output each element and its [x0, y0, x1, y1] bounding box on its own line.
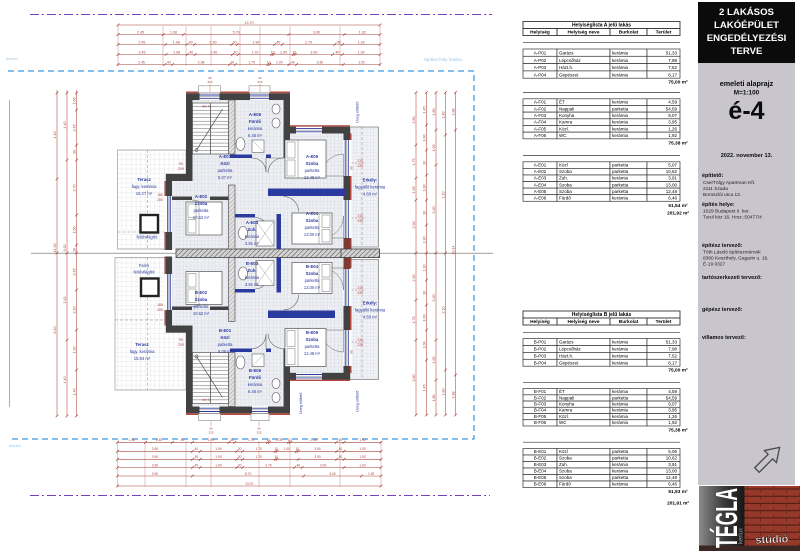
svg-text:kerámia: kerámia — [612, 65, 629, 70]
svg-text:40: 40 — [195, 463, 199, 467]
svg-text:Helyiséglista B jelű lakás: Helyiséglista B jelű lakás — [572, 312, 632, 318]
svg-text:Fürdő: Fürdő — [559, 482, 571, 487]
svg-text:1.92: 1.92 — [368, 472, 375, 476]
svg-text:3.20: 3.20 — [432, 207, 436, 214]
svg-text:B-E04: B-E04 — [306, 264, 319, 269]
svg-text:építés helye:: építés helye: — [702, 202, 735, 208]
svg-text:3.00: 3.00 — [313, 30, 320, 34]
svg-text:Terület: Terület — [656, 30, 672, 36]
svg-text:2.10: 2.10 — [442, 307, 446, 314]
svg-text:B-E06: B-E06 — [249, 368, 262, 373]
svg-text:225: 225 — [358, 219, 364, 223]
svg-text:A-E05: A-E05 — [534, 189, 547, 194]
svg-text:1.92: 1.92 — [359, 455, 366, 459]
svg-text:2.45: 2.45 — [137, 30, 144, 34]
svg-text:Garázs: Garázs — [559, 51, 574, 56]
svg-text:30: 30 — [230, 438, 234, 442]
svg-text:30: 30 — [238, 447, 242, 451]
svg-text:felülvilágító: felülvilágító — [137, 235, 159, 240]
svg-text:2.80: 2.80 — [412, 117, 416, 124]
svg-text:B-E04: B-E04 — [534, 469, 547, 474]
svg-text:3.90: 3.90 — [152, 447, 159, 451]
svg-text:kerámia: kerámia — [612, 340, 629, 345]
svg-text:parketta: parketta — [194, 304, 210, 309]
svg-text:LAKÓÉPÜLET: LAKÓÉPÜLET — [714, 19, 779, 31]
svg-text:1.00: 1.00 — [423, 342, 427, 349]
svg-text:3.91 m²: 3.91 m² — [245, 241, 260, 246]
svg-text:Közl: Közl — [559, 449, 568, 454]
svg-text:5.70: 5.70 — [233, 30, 240, 34]
svg-text:1.00: 1.00 — [284, 447, 291, 451]
svg-text:1.00: 1.00 — [280, 50, 287, 54]
svg-text:6.46 m²: 6.46 m² — [248, 389, 263, 394]
svg-text:B-E02: B-E02 — [534, 456, 547, 461]
svg-text:parketta: parketta — [194, 208, 210, 213]
svg-text:Szoba: Szoba — [559, 182, 572, 187]
svg-text:10: 10 — [423, 211, 427, 215]
svg-text:1.80: 1.80 — [442, 112, 446, 119]
svg-text:30: 30 — [73, 150, 77, 154]
svg-text:75,38 m²: 75,38 m² — [668, 140, 688, 146]
svg-text:parketta: parketta — [612, 475, 629, 480]
svg-text:fagyálló kerámia: fagyálló kerámia — [355, 185, 386, 190]
svg-text:3.90: 3.90 — [152, 463, 159, 467]
svg-text:ém 0: ém 0 — [202, 398, 210, 402]
svg-text:1.00: 1.00 — [423, 315, 427, 322]
svg-text:Szoba: Szoba — [559, 469, 572, 474]
svg-text:40: 40 — [338, 438, 342, 442]
svg-text:90: 90 — [179, 338, 183, 342]
svg-text:A-F04: A-F04 — [534, 120, 547, 125]
svg-text:4.40: 4.40 — [63, 122, 67, 129]
svg-text:fagy. kerámia: fagy. kerámia — [132, 184, 157, 189]
svg-text:30: 30 — [233, 50, 237, 54]
svg-text:2.45: 2.45 — [138, 60, 145, 64]
svg-text:Helyiség: Helyiség — [530, 319, 550, 325]
svg-text:kerámia: kerámia — [612, 58, 629, 63]
svg-text:2.38: 2.38 — [310, 438, 317, 442]
svg-text:40: 40 — [181, 438, 185, 442]
svg-text:225: 225 — [207, 80, 212, 84]
svg-text:A-P02: A-P02 — [534, 58, 547, 63]
svg-text:Tóth László építészmérnök: Tóth László építészmérnök — [703, 250, 761, 256]
svg-text:Szoba: Szoba — [306, 337, 319, 342]
svg-text:10.62 m²: 10.62 m² — [193, 215, 210, 220]
svg-text:209: 209 — [178, 167, 184, 171]
svg-text:ÉT: ÉT — [559, 388, 565, 394]
svg-text:Konyha: Konyha — [559, 113, 575, 118]
svg-text:parketta: parketta — [305, 278, 321, 283]
svg-text:3.45: 3.45 — [63, 297, 67, 304]
svg-text:é-4: é-4 — [728, 97, 764, 125]
svg-text:3,91: 3,91 — [668, 462, 677, 467]
svg-text:3,95: 3,95 — [668, 120, 677, 125]
svg-text:1.92: 1.92 — [358, 40, 365, 44]
svg-text:Terasz: Terasz — [137, 177, 151, 182]
svg-text:Erkély:: Erkély: — [363, 178, 378, 183]
svg-text:Gépészet: Gépészet — [559, 72, 579, 77]
svg-text:WC: WC — [559, 133, 567, 138]
svg-text:Zuh.: Zuh. — [559, 462, 568, 467]
svg-text:1.80: 1.80 — [442, 389, 446, 396]
svg-text:parketta: parketta — [612, 189, 629, 194]
svg-text:Helyiség neve: Helyiség neve — [568, 30, 600, 36]
svg-text:Konyha: Konyha — [559, 401, 575, 406]
svg-text:Terasz: Terasz — [135, 342, 149, 347]
svg-text:13.70: 13.70 — [245, 482, 253, 486]
svg-text:Nappali: Nappali — [559, 395, 574, 400]
svg-text:7,98: 7,98 — [668, 347, 677, 352]
svg-text:B-F02: B-F02 — [534, 395, 547, 400]
svg-text:CserTölgy Apartman Kft.: CserTölgy Apartman Kft. — [703, 180, 755, 186]
svg-text:Fürdő: Fürdő — [249, 119, 262, 124]
svg-text:parketta: parketta — [612, 169, 629, 174]
svg-text:40: 40 — [195, 447, 199, 451]
svg-text:1.90: 1.90 — [215, 463, 222, 467]
svg-text:Szoba: Szoba — [559, 456, 572, 461]
svg-text:parketta: parketta — [305, 168, 321, 173]
svg-text:3,91: 3,91 — [668, 176, 677, 181]
svg-text:1.46: 1.46 — [128, 438, 135, 442]
svg-text:1.90: 1.90 — [210, 40, 217, 44]
svg-text:A-E02: A-E02 — [195, 194, 208, 199]
svg-text:185: 185 — [157, 193, 163, 197]
svg-text:Közl.: Közl. — [559, 414, 569, 419]
svg-text:Szoba: Szoba — [306, 271, 319, 276]
svg-text:1.00: 1.00 — [423, 135, 427, 142]
svg-text:225: 225 — [208, 431, 213, 435]
svg-text:ÉT: ÉT — [559, 99, 565, 105]
svg-text:B-F05: B-F05 — [534, 414, 547, 419]
svg-text:kerámia: kerámia — [612, 389, 629, 394]
svg-text:Burkolat: Burkolat — [619, 319, 639, 325]
svg-text:75,38 m²: 75,38 m² — [668, 427, 688, 433]
svg-text:54,59: 54,59 — [666, 106, 678, 111]
svg-text:1.92: 1.92 — [358, 50, 365, 54]
svg-text:1.40: 1.40 — [73, 389, 77, 396]
svg-text:ENGEDÉLYEZÉSI: ENGEDÉLYEZÉSI — [707, 32, 787, 44]
svg-text:40: 40 — [195, 455, 199, 459]
svg-text:5,06: 5,06 — [668, 449, 677, 454]
svg-text:13.00 m²: 13.00 m² — [304, 232, 321, 237]
svg-text:TERVE: TERVE — [731, 46, 763, 57]
svg-text:90: 90 — [350, 350, 354, 354]
svg-text:gépész tervező:: gépész tervező: — [702, 307, 743, 313]
svg-text:Szoba: Szoba — [559, 475, 572, 480]
svg-text:A-P03: A-P03 — [534, 65, 547, 70]
svg-text:185: 185 — [157, 303, 163, 307]
svg-text:Közl: Közl — [220, 161, 229, 166]
svg-text:parketta: parketta — [305, 344, 321, 349]
svg-text:8,17: 8,17 — [668, 360, 677, 365]
svg-text:B-P03: B-P03 — [534, 354, 547, 359]
svg-text:A-E01: A-E01 — [219, 154, 232, 159]
svg-text:1.92: 1.92 — [359, 447, 366, 451]
svg-text:7,52: 7,52 — [668, 354, 677, 359]
svg-text:Terület: Terület — [656, 319, 672, 325]
svg-text:1.00: 1.00 — [423, 185, 427, 192]
svg-text:Turul köz 16. Hrsz.:50477/4: Turul köz 16. Hrsz.:50477/4 — [703, 215, 762, 221]
svg-text:Fürdő: Fürdő — [559, 195, 571, 200]
svg-text:2022. november 13.: 2022. november 13. — [721, 153, 773, 159]
svg-text:4.60 m²: 4.60 m² — [363, 192, 378, 197]
svg-text:1.65: 1.65 — [73, 98, 77, 105]
svg-text:építési hely határa: építési hely határa — [424, 57, 462, 62]
svg-text:4,59: 4,59 — [668, 100, 677, 105]
svg-text:3.90: 3.90 — [310, 50, 317, 54]
svg-text:1.92: 1.92 — [358, 60, 365, 64]
svg-text:kerámia: kerámia — [612, 113, 629, 118]
svg-text:B-F01: B-F01 — [534, 389, 547, 394]
svg-text:13.00 m²: 13.00 m² — [304, 285, 321, 290]
svg-text:40: 40 — [276, 40, 280, 44]
svg-text:Házt.h.: Házt.h. — [559, 354, 573, 359]
svg-text:Szoba: Szoba — [195, 201, 208, 206]
svg-text:3.90: 3.90 — [152, 472, 159, 476]
svg-text:kerámia: kerámia — [612, 414, 629, 419]
svg-text:209: 209 — [178, 343, 184, 347]
svg-text:1.80: 1.80 — [432, 395, 436, 402]
svg-text:emeleti alaprajz: emeleti alaprajz — [720, 79, 774, 88]
svg-text:15.84 m²: 15.84 m² — [134, 356, 151, 361]
svg-text:1.45: 1.45 — [423, 385, 427, 392]
svg-text:A-P04: A-P04 — [534, 72, 547, 77]
svg-text:Közl.: Közl. — [559, 126, 569, 131]
svg-text:1.92: 1.92 — [359, 438, 366, 442]
svg-text:1.30: 1.30 — [423, 237, 427, 244]
svg-text:építész tervező:: építész tervező: — [702, 243, 743, 249]
svg-text:Üveg előtető: Üveg előtető — [356, 102, 360, 123]
svg-text:A-E01: A-E01 — [534, 163, 547, 168]
svg-text:8.40: 8.40 — [53, 327, 57, 334]
svg-text:2.45: 2.45 — [138, 40, 145, 44]
svg-text:parketta: parketta — [305, 225, 321, 230]
svg-text:1.70: 1.70 — [251, 50, 258, 54]
svg-text:B-E01: B-E01 — [534, 449, 547, 454]
svg-text:2.45: 2.45 — [139, 50, 146, 54]
svg-text:5.07 m²: 5.07 m² — [218, 175, 233, 180]
svg-text:parketta: parketta — [218, 168, 234, 173]
svg-text:3.00: 3.00 — [320, 463, 327, 467]
svg-text:Szoba: Szoba — [306, 161, 319, 166]
svg-text:51,33: 51,33 — [666, 340, 678, 345]
svg-text:51,54 m²: 51,54 m² — [668, 203, 688, 209]
svg-text:parketta: parketta — [612, 395, 629, 400]
svg-text:A-E03: A-E03 — [534, 176, 547, 181]
svg-text:90: 90 — [179, 162, 183, 166]
svg-text:225: 225 — [257, 80, 262, 84]
svg-text:parketta: parketta — [612, 182, 629, 187]
svg-text:kerámia: kerámia — [248, 382, 263, 387]
svg-text:fagyálló kerámia: fagyálló kerámia — [355, 308, 386, 313]
svg-text:1,92: 1,92 — [668, 133, 677, 138]
svg-text:Lépcsőház: Lépcsőház — [559, 58, 582, 63]
svg-text:6,46: 6,46 — [668, 482, 677, 487]
svg-text:3.90: 3.90 — [152, 455, 159, 459]
svg-text:1.90: 1.90 — [252, 40, 259, 44]
svg-text:A-E06: A-E06 — [249, 112, 262, 117]
svg-text:B-F03: B-F03 — [534, 401, 547, 406]
svg-text:1,92: 1,92 — [668, 420, 677, 425]
svg-text:9,07: 9,07 — [668, 401, 677, 406]
svg-text:6.46 m²: 6.46 m² — [248, 133, 263, 138]
svg-text:B-F06: B-F06 — [534, 420, 547, 425]
svg-text:kerlux: kerlux — [739, 528, 745, 544]
svg-text:Fürdő: Fürdő — [249, 375, 262, 380]
svg-text:7,98: 7,98 — [668, 58, 677, 63]
svg-text:3.10: 3.10 — [73, 307, 77, 314]
svg-text:B-E05: B-E05 — [306, 330, 319, 335]
svg-text:A-E04: A-E04 — [534, 182, 547, 187]
svg-text:övezet: övezet — [6, 56, 19, 61]
svg-text:40: 40 — [296, 463, 300, 467]
svg-text:villamos tervező:: villamos tervező: — [702, 335, 746, 341]
svg-text:210: 210 — [358, 286, 364, 290]
svg-text:A-E04: A-E04 — [306, 211, 319, 216]
svg-text:40: 40 — [189, 40, 193, 44]
svg-text:kerámia: kerámia — [612, 133, 629, 138]
svg-text:40: 40 — [291, 60, 295, 64]
svg-text:A-F01: A-F01 — [534, 100, 547, 105]
svg-text:1.08: 1.08 — [173, 50, 180, 54]
svg-text:40: 40 — [335, 50, 339, 54]
svg-text:2.10: 2.10 — [442, 192, 446, 199]
svg-text:54,59: 54,59 — [666, 395, 678, 400]
svg-text:B-P01: B-P01 — [534, 340, 547, 345]
svg-text:40: 40 — [189, 50, 193, 54]
svg-text:kerámia: kerámia — [248, 126, 263, 131]
svg-text:10,62: 10,62 — [666, 456, 678, 461]
svg-text:4.40: 4.40 — [53, 132, 57, 139]
svg-text:1,26: 1,26 — [668, 414, 677, 419]
svg-text:30: 30 — [73, 248, 77, 252]
svg-text:kerámia: kerámia — [612, 462, 629, 467]
svg-text:1.08: 1.08 — [173, 40, 180, 44]
svg-text:210: 210 — [358, 214, 364, 218]
svg-text:kerámia: kerámia — [612, 126, 629, 131]
svg-text:1.45: 1.45 — [423, 107, 427, 114]
svg-text:B-E01: B-E01 — [219, 328, 232, 333]
svg-text:Zuh.: Zuh. — [247, 268, 256, 273]
svg-text:kerámia: kerámia — [612, 176, 629, 181]
svg-text:Lépcsőház: Lépcsőház — [559, 347, 582, 352]
svg-text:201,91 m²: 201,91 m² — [667, 501, 689, 507]
svg-text:Közl: Közl — [559, 163, 568, 168]
svg-text:9.20: 9.20 — [63, 245, 67, 252]
svg-text:7,52: 7,52 — [668, 65, 677, 70]
svg-text:A-F03: A-F03 — [534, 113, 547, 118]
svg-text:kerámia: kerámia — [612, 347, 629, 352]
svg-text:B-E02: B-E02 — [195, 290, 208, 295]
svg-text:Zuh.: Zuh. — [559, 176, 568, 181]
svg-text:2.30: 2.30 — [412, 222, 416, 229]
svg-text:B-E06: B-E06 — [534, 482, 547, 487]
svg-text:Helyiség: Helyiség — [530, 30, 550, 36]
svg-text:10: 10 — [423, 161, 427, 165]
svg-text:12.48 m²: 12.48 m² — [304, 175, 321, 180]
svg-text:Garázs: Garázs — [559, 340, 574, 345]
svg-text:3.70: 3.70 — [73, 185, 77, 192]
svg-text:1.05: 1.05 — [412, 187, 416, 194]
svg-text:A-E03: A-E03 — [246, 220, 259, 225]
svg-text:kerámia: kerámia — [612, 100, 629, 105]
svg-text:1.88: 1.88 — [452, 392, 456, 399]
svg-text:1029 Budapest II. ker.: 1029 Budapest II. ker. — [703, 209, 750, 215]
svg-text:1.00: 1.00 — [432, 145, 436, 152]
svg-text:205: 205 — [157, 308, 163, 312]
svg-text:4,59: 4,59 — [668, 389, 677, 394]
svg-text:1.75: 1.75 — [412, 159, 416, 166]
svg-text:2.98: 2.98 — [198, 60, 205, 64]
svg-text:övezet: övezet — [9, 443, 22, 448]
svg-text:1.30: 1.30 — [423, 265, 427, 272]
svg-text:B-F04: B-F04 — [534, 408, 547, 413]
svg-text:225: 225 — [358, 343, 364, 347]
svg-text:1.90: 1.90 — [210, 50, 217, 54]
svg-text:225: 225 — [256, 431, 261, 435]
svg-text:A-F06: A-F06 — [534, 133, 547, 138]
svg-text:A-E05: A-E05 — [306, 154, 319, 159]
svg-text:1.00: 1.00 — [276, 438, 283, 442]
svg-text:stúdió: stúdió — [755, 533, 789, 546]
svg-text:Szoba: Szoba — [306, 218, 319, 223]
svg-text:kerámia: kerámia — [612, 72, 629, 77]
svg-text:13.70: 13.70 — [245, 21, 254, 25]
svg-text:kerámia: kerámia — [245, 234, 260, 239]
svg-text:40: 40 — [167, 60, 171, 64]
svg-text:3.90: 3.90 — [314, 455, 321, 459]
svg-text:Üveg előtető: Üveg előtető — [356, 391, 360, 412]
svg-text:3.20: 3.20 — [432, 295, 436, 302]
svg-text:30: 30 — [231, 60, 235, 64]
svg-text:12,48: 12,48 — [666, 189, 678, 194]
svg-text:210: 210 — [358, 338, 364, 342]
svg-text:3.91 m²: 3.91 m² — [245, 282, 260, 287]
svg-text:kerámia: kerámia — [612, 354, 629, 359]
svg-text:B-P04: B-P04 — [534, 360, 547, 365]
svg-text:3.90: 3.90 — [314, 447, 321, 451]
svg-text:felülvilágító: felülvilágító — [134, 270, 156, 275]
svg-text:Szoba: Szoba — [559, 169, 572, 174]
svg-text:Zuh.: Zuh. — [247, 227, 256, 232]
svg-text:13,00: 13,00 — [666, 182, 678, 187]
svg-text:parketta: parketta — [612, 449, 629, 454]
svg-text:Faleo: Faleo — [139, 263, 150, 268]
svg-text:1.50: 1.50 — [73, 227, 77, 234]
svg-text:6,46: 6,46 — [668, 195, 677, 200]
svg-text:WC: WC — [559, 420, 567, 425]
svg-text:16.27 m²: 16.27 m² — [136, 191, 153, 196]
svg-text:2 LAKÁSOS: 2 LAKÁSOS — [719, 6, 775, 18]
svg-text:40: 40 — [339, 447, 343, 451]
svg-text:13,00: 13,00 — [666, 469, 678, 474]
svg-text:kerámia: kerámia — [612, 195, 629, 200]
svg-text:É-19 0327: É-19 0327 — [703, 261, 725, 268]
svg-text:Házt.h.: Házt.h. — [559, 65, 573, 70]
svg-text:10.62 m²: 10.62 m² — [193, 311, 210, 316]
svg-text:1.75: 1.75 — [412, 317, 416, 324]
svg-text:kerámia: kerámia — [612, 51, 629, 56]
svg-text:Nappali: Nappali — [559, 106, 574, 111]
svg-text:B-P02: B-P02 — [534, 347, 547, 352]
svg-text:Szoba: Szoba — [195, 297, 208, 302]
svg-text:kerámia: kerámia — [612, 401, 629, 406]
svg-text:51,53 m²: 51,53 m² — [668, 489, 688, 495]
svg-text:4.40: 4.40 — [63, 377, 67, 384]
svg-text:2.70: 2.70 — [305, 40, 312, 44]
svg-text:12,48: 12,48 — [666, 475, 678, 480]
svg-text:1.80: 1.80 — [432, 109, 436, 116]
